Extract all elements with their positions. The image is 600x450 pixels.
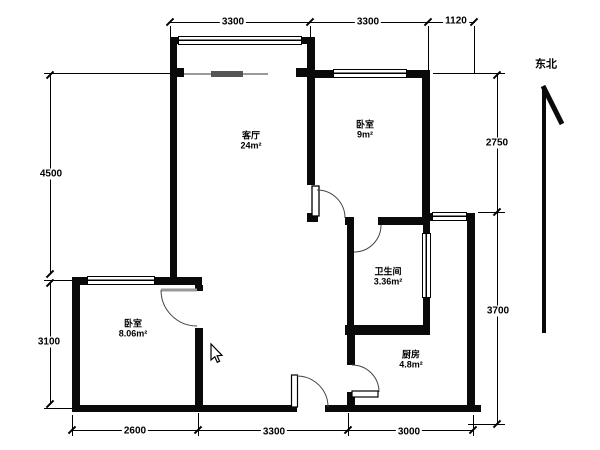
door-arc-entry <box>297 376 328 407</box>
drawing-overlay <box>0 0 600 450</box>
room-area: 4.8m² <box>399 360 423 370</box>
room-area: 3.36m² <box>374 277 403 287</box>
room-label-kitchen: 厨房 4.8m² <box>399 351 423 370</box>
room-area: 24m² <box>240 141 261 151</box>
door-arc-bathroom <box>354 225 381 252</box>
floor-plan-canvas: 3300 3300 1120 4500 3100 2750 3700 2600 … <box>0 0 600 450</box>
room-label-bathroom: 卫生间 3.36m² <box>374 268 403 287</box>
room-label-bedroom-left: 卧室 8.06m² <box>119 320 148 339</box>
door-leaf-entry <box>292 375 298 407</box>
room-label-bedroom-top: 卧室 9m² <box>356 121 374 140</box>
door-arc-bedroom-left <box>161 290 197 326</box>
mouse-cursor <box>211 344 222 362</box>
room-label-living-room: 客厅 24m² <box>240 132 261 151</box>
door-arc-kitchen <box>352 365 379 392</box>
compass-label: 东北 <box>535 60 557 70</box>
room-area: 9m² <box>356 130 374 140</box>
compass-direction-text: 东北 <box>535 58 557 70</box>
door-leaf-kitchen <box>352 391 378 397</box>
room-area: 8.06m² <box>119 329 148 339</box>
door-arc-bedroom-top <box>317 190 345 218</box>
